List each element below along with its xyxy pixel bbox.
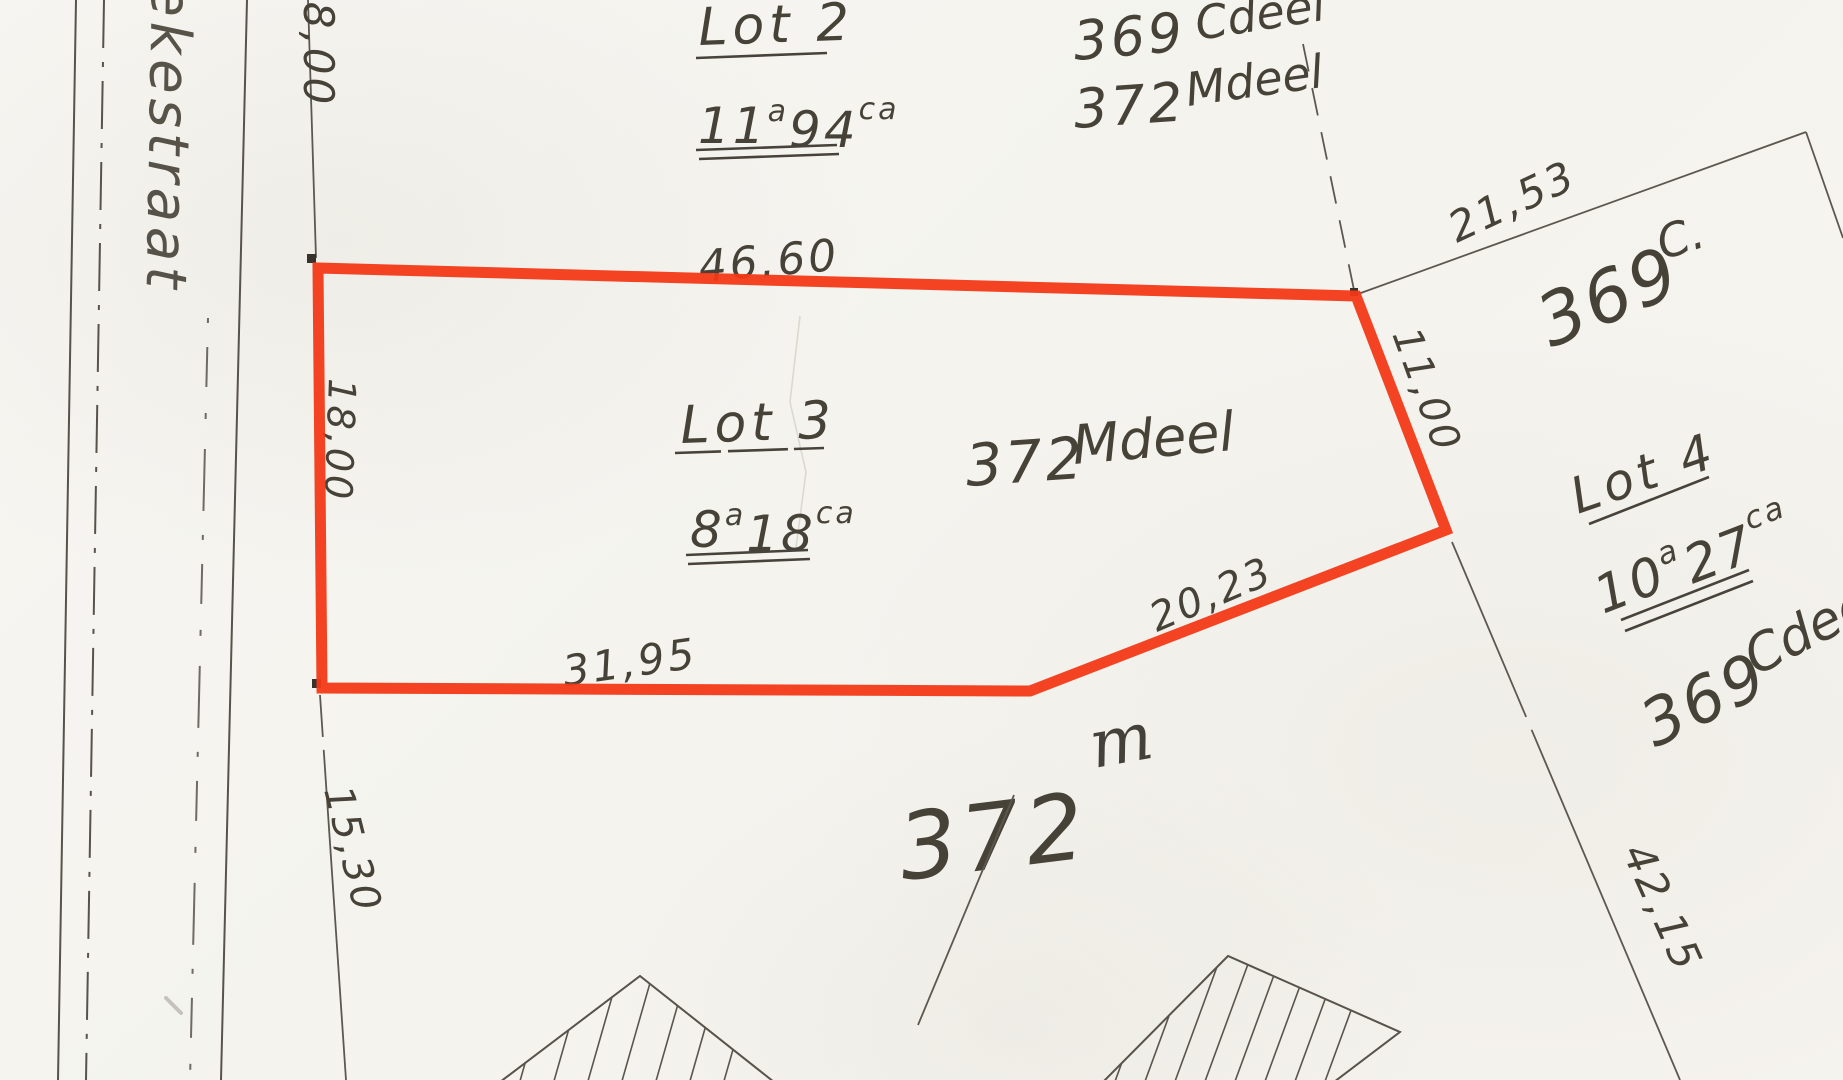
lot3-title: Lot 3 (679, 391, 837, 456)
parcel-372-top-number: 372 (1072, 70, 1188, 141)
measurement-upper-right: 21,53 (1441, 150, 1584, 252)
parcel-372-bottom-annotation: m (1083, 697, 1158, 784)
gable-building-hatching (516, 955, 760, 1080)
lot3-highlight-outline (318, 268, 1446, 691)
parcel-372-bottom-number: 372 (893, 772, 1095, 901)
street-name-label: ekestraat (133, 0, 203, 294)
parcel-369-top-suffix: Cdeel (1191, 0, 1329, 51)
gable-building-outline (500, 955, 774, 1080)
measurement-left-upper: 18,00 (294, 0, 343, 107)
paper-smudge (166, 998, 181, 1013)
hatched-building-hatching (1110, 945, 1375, 1080)
parcel-372-mid-suffix: Mdeel (1070, 400, 1237, 477)
measurement-left-lower: 15,30 (314, 781, 390, 918)
road-edge-right-line (221, 0, 247, 1080)
lot2-title: Lot 2 (697, 0, 855, 58)
measurement-lower-diagonal: 20,23 (1143, 548, 1280, 641)
road-edge-left-line (58, 0, 76, 1080)
road-centerline-dashdot (86, 0, 104, 1080)
survey-drawing: ekestraat Lot 2 11a94ca 369 Cdeel 372 Md… (0, 0, 1843, 1080)
parcel-369-top-number: 369 (1071, 0, 1188, 73)
parcel-372-mid-number: 372 (963, 424, 1087, 500)
hatched-building-outline (1103, 945, 1400, 1080)
lot4-title: Lot 4 (1563, 421, 1724, 525)
survey-marker-top-left (307, 254, 316, 263)
boundary-line-right-corner (1806, 132, 1843, 238)
street-name-trail-dots (190, 318, 208, 1080)
parcel-372-top-suffix: Mdeel (1182, 44, 1327, 117)
cadastral-sketch: ekestraat Lot 2 11a94ca 369 Cdeel 372 Md… (0, 0, 1843, 1080)
